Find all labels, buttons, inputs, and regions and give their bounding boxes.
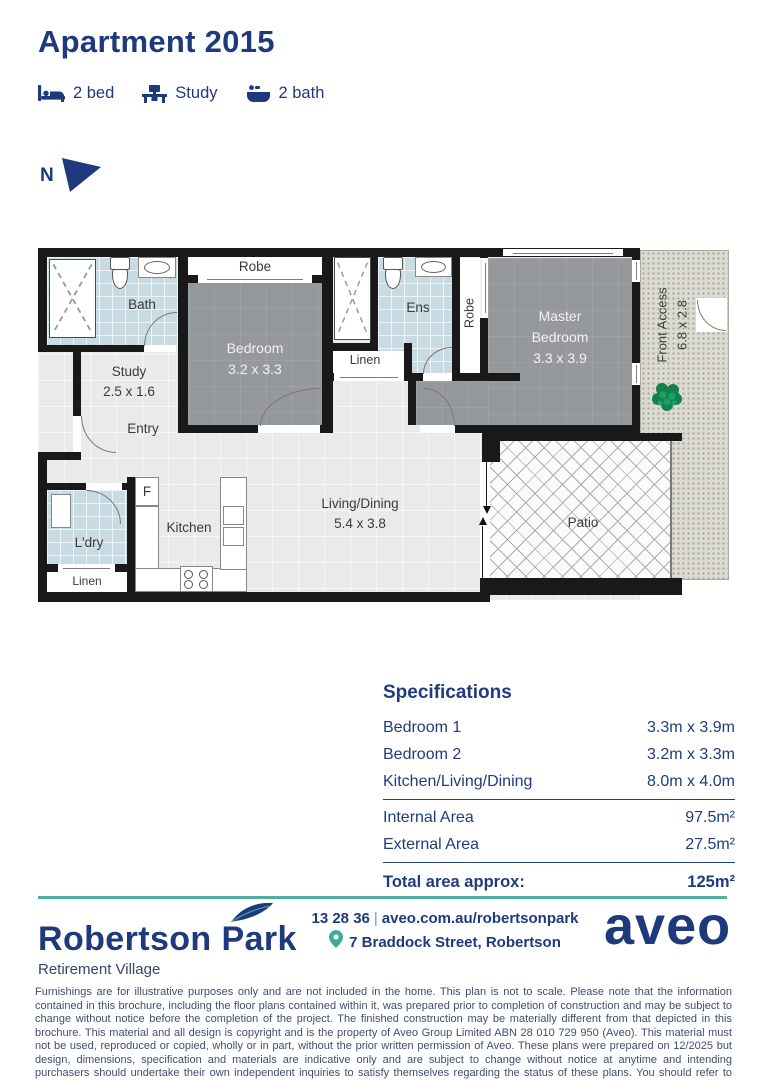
tree-icon bbox=[649, 379, 685, 420]
room-label-bedroom2: Bedroom3.2 x 3.3 bbox=[227, 338, 284, 380]
desk-icon bbox=[142, 85, 167, 103]
website-link[interactable]: aveo.com.au/robertsonpark bbox=[382, 910, 579, 927]
toilet bbox=[383, 257, 403, 290]
spec-value: 3.2m x 3.3m bbox=[647, 746, 735, 764]
arrow-down-icon bbox=[483, 506, 491, 514]
wall bbox=[47, 483, 86, 490]
sliding-door-panel bbox=[486, 462, 487, 506]
divider bbox=[383, 862, 735, 863]
wall bbox=[178, 425, 258, 433]
room-label-linen-laundry: Linen bbox=[72, 572, 101, 590]
wall bbox=[452, 373, 520, 381]
door-opening bbox=[420, 425, 455, 433]
floor-plan: Bath Robe Bedroom3.2 x 3.3 Ens Robe Mast… bbox=[38, 248, 740, 606]
spec-label: Total area approx: bbox=[383, 873, 525, 892]
wall bbox=[482, 433, 500, 462]
room-label-robe: Robe bbox=[239, 257, 271, 277]
wall bbox=[38, 592, 490, 602]
contact-line: 13 28 36|aveo.com.au/robertsonpark bbox=[295, 907, 595, 930]
feature-label: Study bbox=[175, 84, 217, 103]
wall bbox=[38, 452, 47, 602]
feature-study: Study bbox=[142, 84, 217, 103]
spec-label: Internal Area bbox=[383, 809, 474, 827]
basin bbox=[415, 257, 452, 277]
wall bbox=[480, 318, 488, 381]
room-label-ens: Ens bbox=[406, 298, 429, 318]
feature-list: 2 bed Study 2 bath bbox=[38, 84, 324, 103]
spec-value: 125m² bbox=[687, 873, 735, 892]
room-label-patio: Patio bbox=[568, 513, 599, 533]
window-or-slider bbox=[482, 258, 488, 318]
north-label: N bbox=[40, 165, 54, 187]
room-label-master: MasterBedroom3.3 x 3.9 bbox=[532, 306, 589, 369]
wall bbox=[480, 250, 488, 258]
page-title: Apartment 2015 bbox=[38, 24, 275, 60]
wall bbox=[452, 250, 460, 381]
location-pin-icon bbox=[329, 930, 343, 955]
shower-ensuite bbox=[334, 257, 371, 340]
wall bbox=[312, 275, 322, 283]
spec-value: 3.3m x 3.9m bbox=[647, 719, 735, 737]
window-or-slider bbox=[58, 564, 115, 572]
wall bbox=[115, 564, 127, 572]
room-label-kitchen: Kitchen bbox=[166, 518, 211, 538]
arrow-up-icon bbox=[479, 517, 487, 525]
address-line: 7 Braddock Street, Robertson bbox=[329, 930, 561, 955]
specifications-panel: Specifications Bedroom 1 3.3m x 3.9m Bed… bbox=[383, 682, 735, 897]
bed-icon bbox=[38, 85, 65, 103]
bath-icon bbox=[246, 85, 271, 103]
wall bbox=[38, 345, 144, 352]
divider bbox=[383, 799, 735, 800]
kitchen-counter bbox=[135, 506, 159, 570]
room-label-living: Living/Dining5.4 x 3.8 bbox=[321, 494, 398, 535]
room-label-laundry: L'dry bbox=[75, 533, 104, 553]
aveo-logo: aveo bbox=[604, 899, 731, 953]
feature-beds: 2 bed bbox=[38, 84, 114, 103]
door-opening bbox=[73, 416, 81, 452]
wall bbox=[322, 343, 378, 351]
stove bbox=[180, 566, 213, 592]
separator: | bbox=[370, 910, 382, 927]
spec-value: 97.5m² bbox=[685, 809, 735, 827]
door-opening bbox=[144, 345, 176, 352]
wall bbox=[47, 564, 58, 572]
contact-block: 13 28 36|aveo.com.au/robertsonpark 7 Bra… bbox=[295, 907, 595, 956]
room-label-entry: Entry bbox=[127, 419, 159, 439]
wall bbox=[416, 373, 423, 381]
wall bbox=[178, 250, 188, 433]
brochure-page: Apartment 2015 2 bed Study 2 bath N bbox=[0, 0, 764, 1080]
kitchen-drawer bbox=[223, 506, 244, 525]
address-text: 7 Braddock Street, Robertson bbox=[349, 931, 561, 954]
spec-row: Bedroom 1 3.3m x 3.9m bbox=[383, 714, 735, 741]
spec-label: Bedroom 1 bbox=[383, 719, 461, 737]
door-opening bbox=[258, 425, 320, 433]
basin bbox=[138, 257, 176, 278]
room-label-linen-hall: Linen bbox=[350, 351, 381, 370]
window-or-slider bbox=[503, 249, 623, 256]
toilet bbox=[110, 257, 130, 290]
wall bbox=[455, 425, 640, 433]
room-label-front-access: Front Access6.8 x 2.8 bbox=[653, 287, 692, 362]
spec-row: Bedroom 2 3.2m x 3.3m bbox=[383, 741, 735, 768]
specs-title: Specifications bbox=[383, 682, 735, 704]
north-compass: N bbox=[40, 150, 104, 201]
leaf-icon bbox=[228, 901, 274, 930]
brand-lockup: Robertson Park Retirement Village bbox=[38, 922, 297, 978]
room-label-bath: Bath bbox=[128, 295, 156, 315]
room-label-robe-master: Robe bbox=[461, 298, 480, 328]
window-or-slider bbox=[632, 260, 640, 282]
spec-value: 8.0m x 4.0m bbox=[647, 773, 735, 791]
spec-label: External Area bbox=[383, 836, 479, 854]
wall bbox=[404, 373, 416, 381]
wall bbox=[322, 250, 333, 433]
kitchen-drawer bbox=[223, 527, 244, 546]
room-label-study: Study2.5 x 1.6 bbox=[103, 362, 155, 403]
disclaimer-text: Furnishings are for illustrative purpose… bbox=[35, 986, 732, 1080]
spec-total-row: Total area approx: 125m² bbox=[383, 867, 735, 897]
wall bbox=[320, 425, 333, 433]
patio-paving bbox=[490, 441, 672, 578]
door-opening bbox=[86, 483, 122, 490]
window-or-slider bbox=[632, 363, 640, 385]
feature-baths: 2 bath bbox=[246, 84, 325, 103]
wall bbox=[188, 275, 198, 283]
wall bbox=[73, 352, 81, 416]
brand-subtitle: Retirement Village bbox=[38, 961, 297, 978]
spec-row: Kitchen/Living/Dining 8.0m x 4.0m bbox=[383, 768, 735, 795]
patio-edge bbox=[670, 441, 672, 578]
spec-value: 27.5m² bbox=[685, 836, 735, 854]
feature-label: 2 bed bbox=[73, 84, 114, 103]
wall bbox=[38, 248, 47, 352]
shower-bath bbox=[49, 259, 96, 338]
spec-row: Internal Area 97.5m² bbox=[383, 804, 735, 831]
laundry-tub bbox=[51, 494, 71, 528]
north-arrow-icon bbox=[58, 150, 104, 201]
wall bbox=[482, 433, 682, 441]
door-opening bbox=[423, 373, 452, 381]
wall bbox=[408, 381, 416, 425]
wall bbox=[322, 373, 334, 381]
phone-number: 13 28 36 bbox=[311, 910, 369, 927]
spec-label: Bedroom 2 bbox=[383, 746, 461, 764]
room-label-fridge: F bbox=[143, 482, 151, 502]
sliding-door-panel bbox=[482, 526, 483, 578]
window-or-slider bbox=[334, 373, 404, 381]
wall bbox=[370, 250, 378, 343]
sliding-door bbox=[480, 462, 490, 578]
feature-label: 2 bath bbox=[279, 84, 325, 103]
wall bbox=[480, 578, 682, 595]
spec-row: External Area 27.5m² bbox=[383, 831, 735, 858]
wall bbox=[127, 477, 135, 592]
spec-label: Kitchen/Living/Dining bbox=[383, 773, 532, 791]
